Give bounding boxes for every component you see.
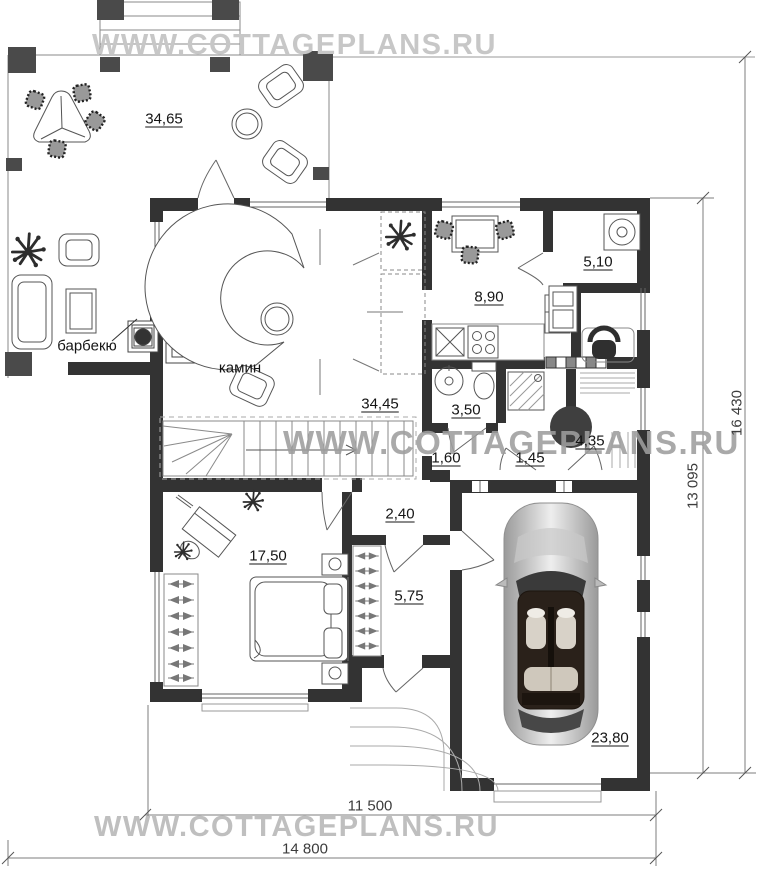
room-label-sauna: 4,35: [575, 434, 604, 449]
dimension-height-house: 13 095: [686, 463, 701, 509]
dimension-width-total: 14 800: [282, 842, 328, 857]
watermark-top: WWW.COTTAGEPLANS.RU: [92, 31, 497, 60]
room-label-terrace: 34,65: [145, 112, 183, 127]
barbecue-grill: [128, 321, 158, 352]
room-label-hall-right: 1,45: [515, 451, 544, 466]
living-room-furniture: [145, 204, 425, 409]
room-label-utility: 5,10: [583, 255, 612, 270]
bedroom-furniture: [164, 491, 348, 686]
terrace-south-wall: [68, 362, 153, 375]
wardrobe-fixtures: [353, 546, 381, 656]
floor-plan-canvas: WWW.COTTAGEPLANS.RU WWW.COTTAGEPLANS.RU …: [0, 0, 759, 874]
watermark-bottom: WWW.COTTAGEPLANS.RU: [94, 813, 499, 842]
room-label-bedroom: 17,50: [249, 549, 287, 564]
room-label-corridor: 2,40: [385, 507, 414, 522]
dimension-width-house: 11 500: [348, 799, 393, 814]
car: [496, 503, 606, 745]
dimension-height-total: 16 430: [730, 390, 745, 436]
room-label-garage: 23,80: [591, 731, 629, 746]
room-label-bathroom: 3,50: [451, 403, 480, 418]
watermark-middle: WWW.COTTAGEPLANS.RU: [283, 426, 740, 459]
annotation-fireplace: камин: [219, 361, 261, 376]
room-label-kitchen: 8,90: [474, 290, 503, 305]
room-label-hall-left: 1,60: [431, 451, 460, 466]
room-label-wardrobe: 5,75: [394, 589, 423, 604]
room-label-living-room: 34,45: [361, 397, 399, 412]
annotation-barbecue: барбекю: [57, 339, 117, 354]
